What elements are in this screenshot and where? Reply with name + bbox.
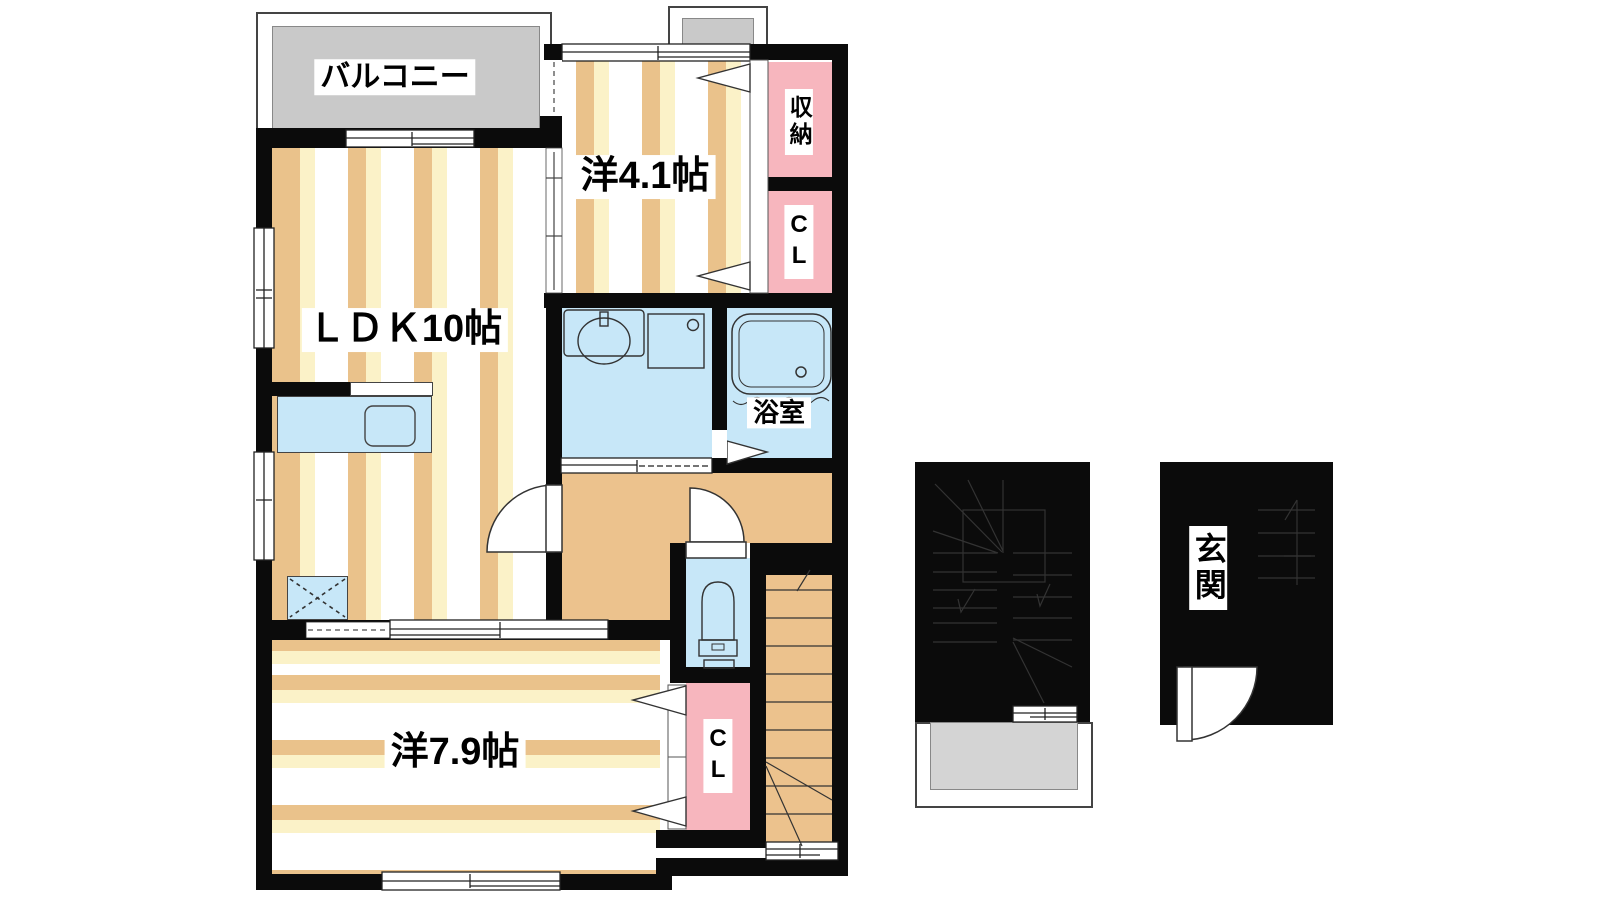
triangle-cl-lower-door-bottom: [633, 797, 686, 826]
window-ldk-left-a: [254, 228, 274, 348]
closet-track-bedroom41: [750, 60, 768, 293]
bath-door-jamb: [712, 430, 727, 458]
bathtub-icon: [732, 314, 831, 405]
label-bedroom-4-1: 洋4.1帖: [575, 155, 716, 199]
washbasin-icon: [564, 310, 644, 364]
triangle-cl-upper-door: [698, 262, 750, 290]
opening-ldk-bedroom41: [546, 60, 562, 293]
stair-block-detail: [933, 480, 1072, 703]
door-toilet-leaf: [686, 542, 746, 558]
washroom-sliding-door: [561, 458, 712, 473]
label-bedroom-7-9: 洋7.9帖: [385, 731, 526, 775]
label-ldk: ＬＤＫ10帖: [302, 308, 508, 352]
triangle-bath-door: [727, 441, 767, 464]
window-stair-block-bottom: [1013, 706, 1077, 722]
door-entrance-leaf: [1177, 667, 1192, 741]
label-balcony: バルコニー: [314, 59, 475, 95]
door-entrance: [1177, 667, 1257, 741]
floor-plan-canvas: バルコニー 洋4.1帖 収納 CL ＬＤＫ10帖 浴室 洋7.9帖 CL 玄関: [0, 0, 1600, 900]
label-storage: 収納: [785, 89, 813, 155]
label-cl-upper: CL: [784, 205, 813, 279]
window-ldk-left-b: [254, 452, 274, 560]
door-ldk: [487, 485, 562, 552]
door-ldk-swing-arc: [487, 485, 554, 552]
washing-machine-icon: [648, 314, 704, 368]
triangle-cl-lower-door-top: [633, 686, 686, 715]
door-ldk-leaf: [546, 485, 562, 552]
label-entrance: 玄関: [1189, 526, 1227, 610]
window-ldk-top: [346, 130, 474, 147]
toilet-icon: [699, 582, 737, 668]
staircase-main-treads: [766, 570, 832, 846]
refrigerator-cross-icon: [290, 579, 345, 617]
entrance-stairs-detail: [1258, 500, 1315, 585]
kitchen-sink-icon: [365, 406, 415, 446]
label-cl-lower: CL: [703, 719, 732, 793]
label-bathroom: 浴室: [747, 397, 811, 428]
window-bedroom79-top: [390, 620, 608, 639]
door-entrance-swing-arc: [1184, 667, 1257, 740]
door-toilet-swing-arc: [690, 488, 744, 542]
triangle-storage-door: [698, 64, 750, 92]
window-bedroom41-top: [562, 44, 750, 61]
window-bedroom79-bottom: [382, 872, 560, 890]
opening-bedroom79-dashed: [306, 622, 390, 638]
door-toilet: [686, 488, 746, 558]
